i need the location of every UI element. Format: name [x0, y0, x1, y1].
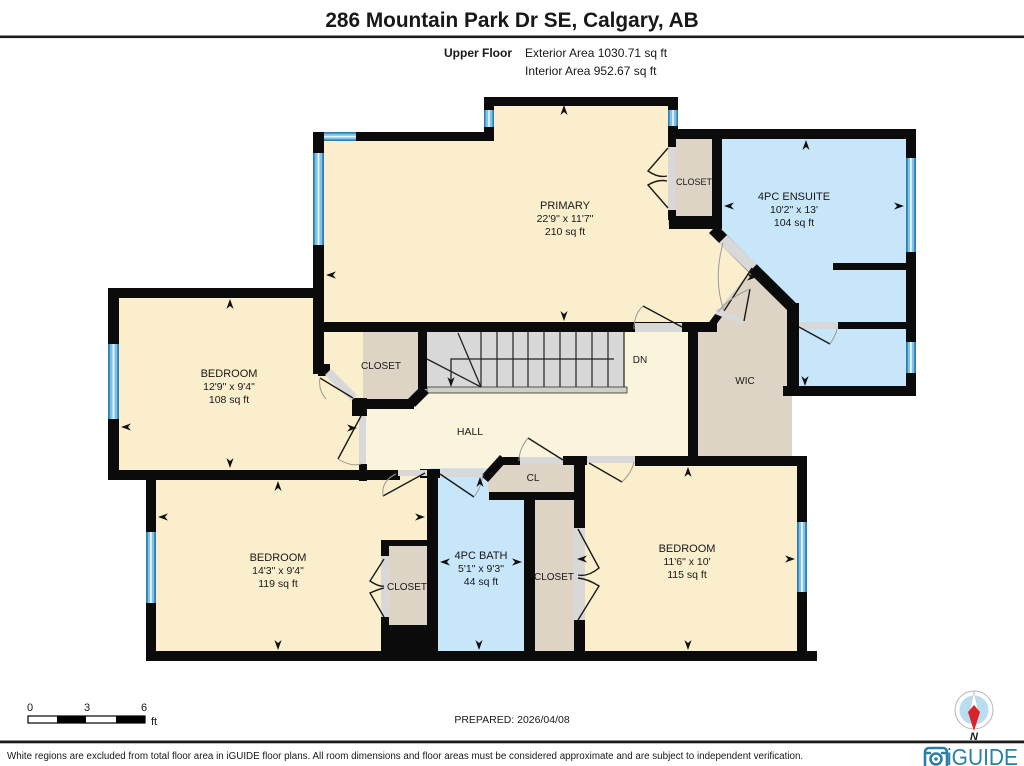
- svg-text:6: 6: [141, 702, 147, 714]
- svg-text:286 Mountain Park Dr SE, Calga: 286 Mountain Park Dr SE, Calgary, AB: [325, 9, 698, 32]
- svg-text:DN: DN: [633, 355, 647, 366]
- svg-text:11'6" x 10': 11'6" x 10': [663, 556, 710, 568]
- svg-text:4PC ENSUITE: 4PC ENSUITE: [758, 191, 830, 203]
- svg-text:14'3" x 9'4": 14'3" x 9'4": [252, 565, 304, 577]
- svg-text:BEDROOM: BEDROOM: [201, 368, 258, 380]
- svg-text:PRIMARY: PRIMARY: [540, 200, 591, 212]
- svg-text:Interior Area 952.67 sq ft: Interior Area 952.67 sq ft: [525, 64, 657, 78]
- svg-text:CLOSET: CLOSET: [387, 582, 427, 593]
- svg-text:BEDROOM: BEDROOM: [659, 543, 716, 555]
- svg-text:Upper Floor: Upper Floor: [444, 46, 512, 60]
- svg-text:108 sq ft: 108 sq ft: [209, 394, 249, 406]
- svg-text:CL: CL: [527, 473, 540, 484]
- svg-text:CLOSET: CLOSET: [361, 361, 401, 372]
- svg-text:22'9" x 11'7": 22'9" x 11'7": [537, 213, 594, 225]
- svg-text:WIC: WIC: [735, 376, 754, 387]
- svg-text:ft: ft: [151, 716, 157, 728]
- svg-text:115 sq ft: 115 sq ft: [667, 569, 707, 581]
- svg-text:PREPARED: 2026/04/08: PREPARED: 2026/04/08: [454, 714, 570, 726]
- svg-text:White regions are excluded fro: White regions are excluded from total fl…: [7, 751, 803, 762]
- svg-text:104 sq ft: 104 sq ft: [774, 217, 814, 229]
- svg-text:iGUIDE: iGUIDE: [947, 744, 1018, 766]
- svg-text:210 sq ft: 210 sq ft: [545, 226, 585, 238]
- svg-text:BEDROOM: BEDROOM: [250, 552, 307, 564]
- svg-text:0: 0: [27, 702, 33, 714]
- svg-text:5'1" x 9'3": 5'1" x 9'3": [458, 563, 504, 575]
- svg-text:CLOSET: CLOSET: [676, 177, 713, 187]
- svg-text:119 sq ft: 119 sq ft: [258, 578, 298, 590]
- svg-text:Exterior Area 1030.71 sq ft: Exterior Area 1030.71 sq ft: [525, 46, 668, 60]
- svg-text:44 sq ft: 44 sq ft: [464, 576, 499, 588]
- svg-text:12'9" x 9'4": 12'9" x 9'4": [203, 381, 255, 393]
- svg-text:CLOSET: CLOSET: [534, 572, 574, 583]
- svg-text:4PC BATH: 4PC BATH: [455, 550, 508, 562]
- svg-text:HALL: HALL: [457, 426, 483, 438]
- svg-text:3: 3: [84, 702, 90, 714]
- svg-text:10'2" x 13': 10'2" x 13': [770, 204, 818, 216]
